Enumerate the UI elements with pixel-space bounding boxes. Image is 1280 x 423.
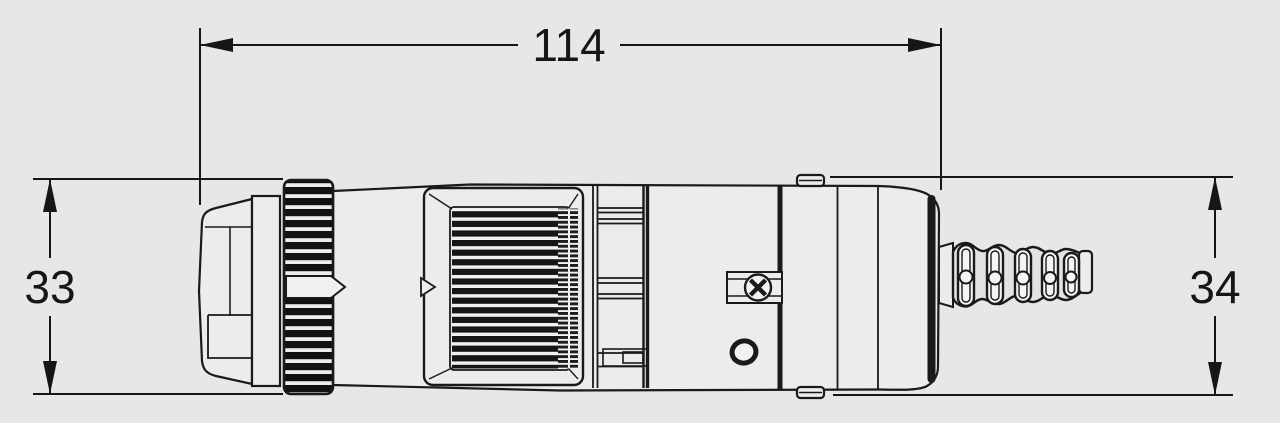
boot-slot-pin [989, 272, 1002, 285]
boot-slot-pin [1066, 272, 1077, 283]
boot-flange [939, 243, 953, 307]
boot-slot-pin [960, 271, 973, 284]
dimension-label-front-height: 33 [24, 261, 75, 313]
boot-slot-pin [1044, 272, 1056, 284]
technical-drawing-canvas: 114 33 34 [0, 0, 1280, 423]
dimension-label-overall-length: 114 [532, 19, 605, 71]
dimension-label-rear-height: 34 [1189, 261, 1240, 313]
boot-end-cap [1079, 251, 1092, 293]
strain-relief-boot [939, 243, 1092, 307]
technical-drawing: 114 33 34 [0, 0, 1280, 423]
grip-pad [421, 188, 583, 385]
front-cap [199, 196, 280, 386]
boot-slot-pin [1017, 272, 1030, 285]
front-cap-rim [252, 196, 280, 386]
grip-ribs [452, 209, 558, 369]
focus-ring-pointer [286, 276, 345, 298]
